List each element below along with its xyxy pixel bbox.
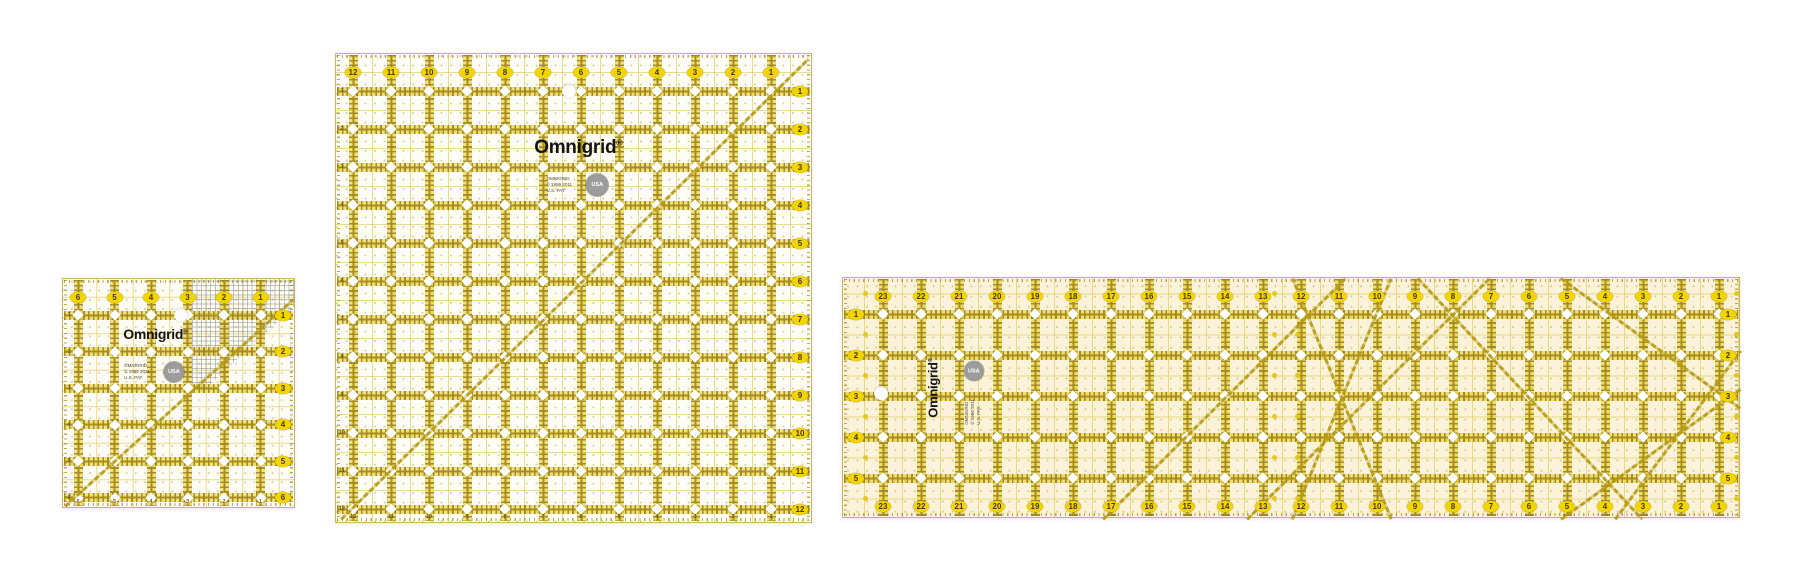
minor-number: 4: [149, 499, 152, 505]
fine-print-line: OMNIGRID: [124, 364, 150, 370]
registered-mark: ®: [616, 137, 622, 147]
ruler-scene: 654321123456123456654321Omnigrid®USAOMNI…: [0, 0, 1807, 570]
hanging-hole: [174, 308, 188, 322]
number-oval: 4: [848, 432, 864, 443]
number-oval: 3: [1635, 291, 1651, 302]
number-oval: 8: [497, 67, 513, 78]
number-oval: 17: [1103, 291, 1119, 302]
fine-print-line: © 1986 2011: [970, 399, 976, 425]
minor-number: 12: [350, 514, 356, 520]
number-oval: 3: [687, 67, 703, 78]
number-oval: 1: [275, 310, 291, 321]
fine-print-line: U.S. PAT.: [124, 375, 150, 381]
number-oval: 4: [1597, 291, 1613, 302]
minor-number: 5: [113, 499, 116, 505]
number-oval: 5: [1559, 501, 1575, 512]
number-oval: 2: [848, 350, 864, 361]
yellow-dot: [863, 291, 868, 296]
number-oval: 1: [1711, 501, 1727, 512]
minor-number: 2: [222, 499, 225, 505]
number-oval: 22: [913, 501, 929, 512]
number-oval: 2: [792, 124, 808, 135]
number-oval: 5: [848, 473, 864, 484]
number-oval: 17: [1103, 501, 1119, 512]
minor-number: 1: [259, 499, 262, 505]
yellow-dot: [863, 496, 868, 501]
number-oval: 21: [951, 501, 967, 512]
usa-badge: USA: [586, 174, 608, 196]
number-oval: 12: [1293, 291, 1309, 302]
number-oval: 19: [1027, 501, 1043, 512]
number-oval: 4: [1597, 501, 1613, 512]
number-oval: 2: [1673, 291, 1689, 302]
inch-line-horizontal: [337, 239, 810, 248]
number-oval: 1: [848, 309, 864, 320]
minor-number: 4: [655, 514, 658, 520]
number-oval: 4: [792, 200, 808, 211]
number-oval: 9: [792, 390, 808, 401]
minor-number: 3: [340, 164, 343, 170]
yellow-dot: [1734, 414, 1739, 419]
number-oval: 20: [989, 291, 1005, 302]
number-oval: 5: [1559, 291, 1575, 302]
number-oval: 2: [1720, 350, 1736, 361]
number-oval: 6: [1521, 291, 1537, 302]
number-oval: 8: [792, 352, 808, 363]
fine-print-block: OMNIGRID© 1986 2011U.S. PAT.: [546, 176, 572, 194]
minor-number: 2: [731, 514, 734, 520]
fine-print-line: OMNIGRID: [964, 399, 970, 425]
minor-number: 9: [340, 392, 343, 398]
number-oval: 5: [275, 456, 291, 467]
number-oval: 23: [875, 291, 891, 302]
inch-line-horizontal: [337, 163, 810, 172]
number-oval: 12: [345, 67, 361, 78]
number-oval: 7: [792, 314, 808, 325]
number-oval: 8: [1445, 501, 1461, 512]
usa-badge: USA: [964, 362, 983, 381]
brand-logo-text: Omnigrid: [925, 362, 940, 417]
inch-line-horizontal: [337, 505, 810, 514]
number-oval: 1: [1711, 291, 1727, 302]
minor-number: 1: [769, 514, 772, 520]
fine-print-line: U.S. PAT.: [546, 188, 572, 194]
yellow-dot: [1272, 414, 1277, 419]
number-oval: 11: [1331, 501, 1347, 512]
number-oval: 5: [611, 67, 627, 78]
number-oval: 18: [1065, 501, 1081, 512]
number-oval: 4: [275, 419, 291, 430]
number-oval: 16: [1141, 291, 1157, 302]
minor-number: 11: [339, 468, 345, 474]
number-oval: 18: [1065, 291, 1081, 302]
number-oval: 4: [1720, 432, 1736, 443]
number-oval: 7: [1483, 501, 1499, 512]
yellow-dot: [863, 455, 868, 460]
number-oval: 14: [1217, 291, 1233, 302]
number-oval: 7: [1483, 291, 1499, 302]
minor-number: 6: [579, 514, 582, 520]
yellow-dot: [1272, 455, 1277, 460]
yellow-dot: [1734, 373, 1739, 378]
minor-number: 6: [340, 278, 343, 284]
yellow-dot: [863, 414, 868, 419]
number-oval: 1: [253, 292, 269, 303]
yellow-dot: [863, 332, 868, 337]
minor-number: 6: [67, 495, 70, 501]
minor-number: 2: [340, 126, 343, 132]
yellow-dot: [1734, 455, 1739, 460]
number-oval: 2: [216, 292, 232, 303]
number-oval: 5: [1720, 473, 1736, 484]
minor-number: 8: [340, 354, 343, 360]
minor-number: 5: [617, 514, 620, 520]
number-oval: 10: [1369, 501, 1385, 512]
inch-line-horizontal: [337, 467, 810, 476]
number-oval: 11: [1331, 291, 1347, 302]
yellow-dot: [1295, 455, 1300, 460]
minor-number: 8: [503, 514, 506, 520]
minor-number: 4: [340, 202, 343, 208]
number-oval: 12: [1293, 501, 1309, 512]
yellow-dot: [1734, 291, 1739, 296]
fine-print-block: OMNIGRID© 1986 2011U.S. PAT.: [124, 364, 150, 382]
minor-number: 2: [67, 349, 70, 355]
fine-print-line: U.S. PAT.: [976, 399, 982, 425]
ruler-small-square: 654321123456123456654321Omnigrid®USAOMNI…: [62, 278, 295, 508]
number-oval: 7: [535, 67, 551, 78]
minor-number: 7: [541, 514, 544, 520]
minor-number: 11: [388, 514, 394, 520]
number-oval: 16: [1141, 501, 1157, 512]
usa-badge: USA: [164, 362, 184, 382]
inch-line-horizontal: [337, 353, 810, 362]
number-oval: 9: [459, 67, 475, 78]
minor-number: 10: [339, 430, 345, 436]
brand-logo: Omnigrid®: [123, 326, 187, 342]
brand-logo-text: Omnigrid: [123, 326, 183, 342]
number-oval: 10: [792, 428, 808, 439]
inch-line-horizontal: [337, 277, 810, 286]
minor-number: 6: [76, 499, 79, 505]
number-oval: 12: [792, 504, 808, 515]
number-oval: 9: [1407, 501, 1423, 512]
edge-tick-strip-top: [337, 55, 810, 58]
number-oval: 8: [1445, 291, 1461, 302]
minor-number: 3: [693, 514, 696, 520]
minor-number: 1: [67, 312, 70, 318]
yellow-dot: [1295, 332, 1300, 337]
number-oval: 6: [70, 292, 86, 303]
edge-tick-strip-bottom: [337, 518, 810, 521]
minor-number: 1: [340, 88, 343, 94]
brand-logo-text: Omnigrid: [534, 137, 616, 158]
number-oval: 1: [792, 86, 808, 97]
number-oval: 13: [1255, 501, 1271, 512]
number-oval: 6: [573, 67, 589, 78]
number-oval: 13: [1255, 291, 1271, 302]
fine-print-block: OMNIGRID© 1986 2011U.S. PAT.: [964, 399, 982, 425]
minor-number: 9: [465, 514, 468, 520]
number-oval: 23: [875, 501, 891, 512]
yellow-dot: [1272, 496, 1277, 501]
number-oval: 15: [1179, 501, 1195, 512]
number-oval: 3: [792, 162, 808, 173]
brand-logo: Omnigrid®: [534, 137, 622, 159]
fine-print-line: OMNIGRID: [546, 176, 572, 182]
number-oval: 4: [649, 67, 665, 78]
number-oval: 14: [1217, 501, 1233, 512]
ruler-large-square: 1211109876543211234567891011121234567891…: [335, 53, 812, 523]
number-oval: 6: [1521, 501, 1537, 512]
number-oval: 20: [989, 501, 1005, 512]
yellow-dot: [1272, 291, 1277, 296]
number-oval: 15: [1179, 291, 1195, 302]
number-oval: 6: [792, 276, 808, 287]
fine-print-line: © 1986 2011: [546, 182, 572, 188]
number-oval: 2: [725, 67, 741, 78]
number-oval: 9: [1407, 291, 1423, 302]
number-oval: 11: [792, 466, 808, 477]
number-oval: 5: [107, 292, 123, 303]
number-oval: 5: [792, 238, 808, 249]
number-oval: 3: [275, 383, 291, 394]
number-oval: 3: [848, 391, 864, 402]
yellow-dot: [1295, 414, 1300, 419]
fine-print-line: © 1986 2011: [124, 370, 150, 376]
minor-number: 3: [67, 385, 70, 391]
number-oval: 19: [1027, 291, 1043, 302]
minor-number: 4: [67, 422, 70, 428]
number-oval: 3: [1635, 501, 1651, 512]
inch-line-horizontal: [337, 315, 810, 324]
minor-number: 5: [67, 458, 70, 464]
minor-number: 10: [426, 514, 432, 520]
yellow-dot: [863, 373, 868, 378]
number-oval: 10: [1369, 291, 1385, 302]
minor-number: 12: [339, 506, 345, 512]
number-oval: 1: [1720, 309, 1736, 320]
hanging-hole: [562, 84, 576, 98]
yellow-dot: [1272, 373, 1277, 378]
yellow-dot: [1734, 496, 1739, 501]
minor-number: 3: [186, 499, 189, 505]
brand-logo: Omnigrid®: [925, 358, 940, 417]
minor-number: 5: [340, 240, 343, 246]
number-oval: 6: [275, 492, 291, 503]
inch-line-horizontal: [337, 391, 810, 400]
number-oval: 3: [180, 292, 196, 303]
number-oval: 10: [421, 67, 437, 78]
number-oval: 4: [143, 292, 159, 303]
number-oval: 21: [951, 291, 967, 302]
number-oval: 11: [383, 67, 399, 78]
ruler-long-rect: 2322212019181716151413121110987654321232…: [842, 277, 1740, 518]
hanging-hole: [874, 386, 888, 400]
number-oval: 1: [763, 67, 779, 78]
number-oval: 2: [1673, 501, 1689, 512]
registered-mark: ®: [183, 328, 187, 335]
yellow-dot: [1734, 332, 1739, 337]
number-oval: 3: [1720, 391, 1736, 402]
inch-line-horizontal: [337, 429, 810, 438]
yellow-dot: [1272, 332, 1277, 337]
inch-line-horizontal: [337, 201, 810, 210]
minor-number: 7: [340, 316, 343, 322]
number-oval: 2: [275, 346, 291, 357]
number-oval: 22: [913, 291, 929, 302]
registered-mark: ®: [928, 358, 934, 362]
yellow-dot: [1295, 373, 1300, 378]
